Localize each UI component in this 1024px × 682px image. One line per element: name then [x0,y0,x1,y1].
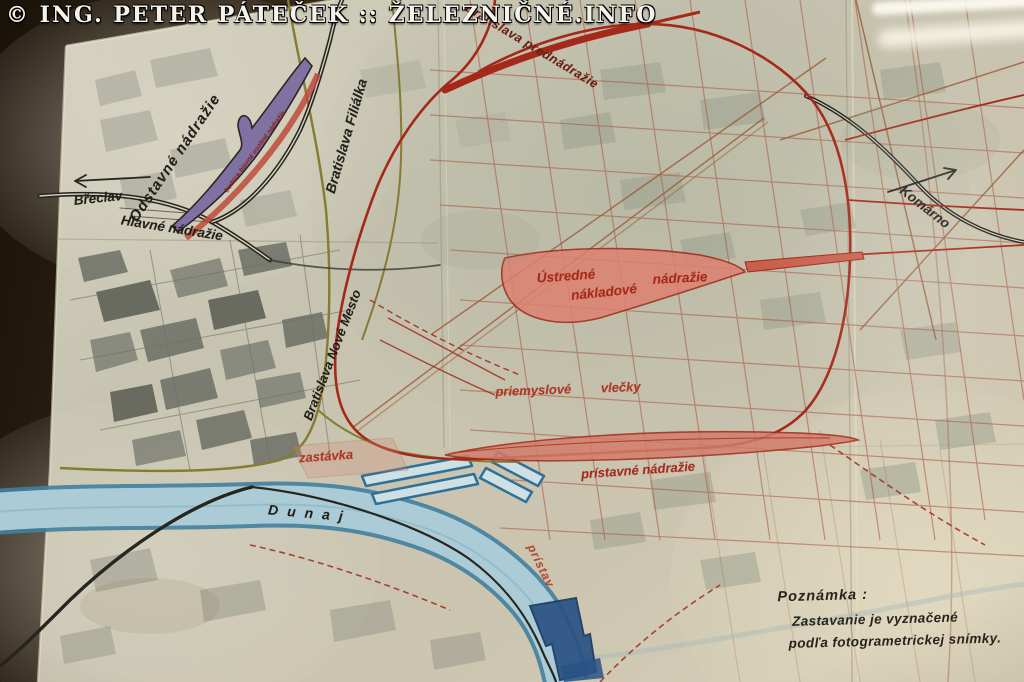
label-buduce-osobne-nadrazie: budúce hlavné osobné nádražie [223,110,287,194]
photo-of-railway-map: Odstavné nádražie budúce hlavné osobné n… [0,0,1024,682]
label-ustredne: Ústredné [536,266,595,285]
label-nakladove: nákladové [570,281,637,303]
map-note: Poznámka : Zastavanie je vyznačené podľa… [777,583,1024,652]
label-pristavne-nadrazie: prístavné nádražie [581,459,696,482]
label-dunaj: Dunaj [268,501,353,524]
label-bratislava-filialka: Bratislava Filiálka [322,77,370,195]
label-komarno: Komárno [897,183,953,231]
label-pristav: prístav [525,542,558,590]
label-zastavka: zastávka [298,447,353,466]
label-nadrazie: nádražie [652,269,707,287]
label-odstavne-nadrazie: Odstavné nádražie [126,91,224,225]
note-line-1: Zastavanie je vyznačené [792,608,1024,629]
map-labels: Odstavné nádražie budúce hlavné osobné n… [0,0,1024,682]
label-priemyslove-vlecky: priemyslové vlečky [495,379,641,399]
photographer-watermark: © ING. PETER PÁTEČEK :: ŽELEZNIČNÉ.INFO [6,2,657,28]
label-hlavne-nadrazie: Hlavné nádražie [120,213,224,244]
label-breclav: Břeclav [73,188,123,208]
label-bratislava-nove-mesto: Bratislava Nové Mesto [300,288,364,423]
